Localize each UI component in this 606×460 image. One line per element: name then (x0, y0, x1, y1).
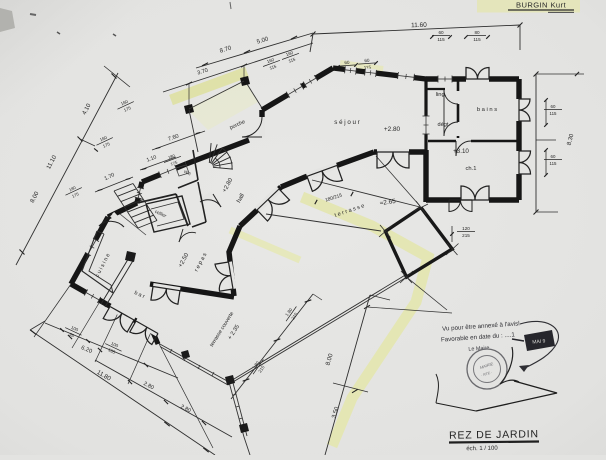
svg-text:115: 115 (437, 37, 445, 42)
svg-text:+2.80: +2.80 (384, 126, 401, 133)
svg-text:60: 60 (551, 104, 556, 109)
svg-text:ling.: ling. (436, 92, 447, 98)
svg-text:80: 80 (474, 30, 480, 35)
svg-text:11.60: 11.60 (411, 22, 427, 30)
svg-text:60: 60 (364, 58, 370, 63)
svg-text:ch.1: ch.1 (466, 166, 477, 172)
svg-text:s é j o u r: s é j o u r (334, 119, 359, 126)
svg-text:dégt: dégt (438, 122, 449, 128)
svg-text:60: 60 (551, 154, 556, 159)
svg-text:115: 115 (473, 37, 481, 42)
svg-text:115: 115 (550, 161, 558, 166)
svg-text:REZ DE JARDIN: REZ DE JARDIN (449, 428, 539, 442)
svg-text:b a i n s: b a i n s (477, 107, 497, 113)
svg-text:215: 215 (462, 233, 470, 238)
svg-text:éch. 1 / 100: éch. 1 / 100 (466, 446, 498, 453)
svg-text:+3.10: +3.10 (453, 148, 469, 155)
svg-text:BURGIN Kurt: BURGIN Kurt (516, 1, 566, 10)
svg-text:60: 60 (438, 30, 444, 35)
svg-text:120: 120 (462, 226, 470, 231)
svg-text:115: 115 (550, 111, 558, 116)
svg-text:60: 60 (344, 60, 350, 65)
